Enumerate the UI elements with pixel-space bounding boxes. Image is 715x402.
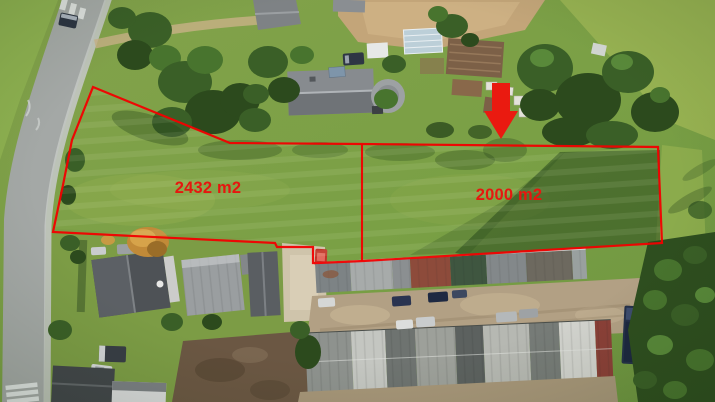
aerial-photo: 2432 m2 2000 m2 [0, 0, 715, 402]
parcel-area-label-right: 2000 m2 [476, 186, 543, 204]
vignette [0, 0, 715, 402]
parcel-area-label-left: 2432 m2 [175, 179, 242, 197]
aerial-photo-stage: 2432 m2 2000 m2 [0, 0, 715, 402]
